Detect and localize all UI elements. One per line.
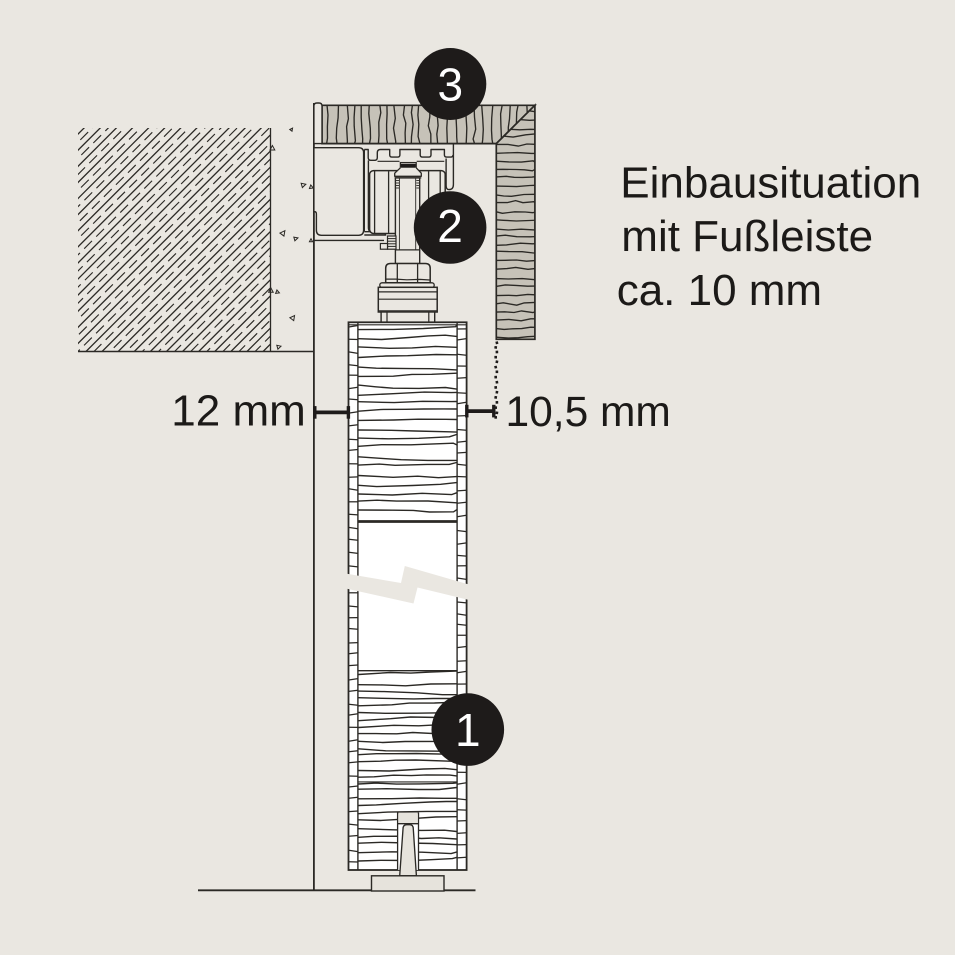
svg-text:mit Fußleiste: mit Fußleiste [621, 212, 873, 261]
svg-text:ca. 10 mm: ca. 10 mm [617, 266, 822, 315]
svg-text:12 mm: 12 mm [171, 387, 305, 436]
svg-text:1: 1 [455, 704, 481, 756]
svg-text:3: 3 [438, 59, 464, 111]
svg-text:2: 2 [437, 200, 463, 252]
svg-text:Einbausituation: Einbausituation [620, 159, 921, 208]
svg-text:10,5 mm: 10,5 mm [506, 389, 671, 436]
